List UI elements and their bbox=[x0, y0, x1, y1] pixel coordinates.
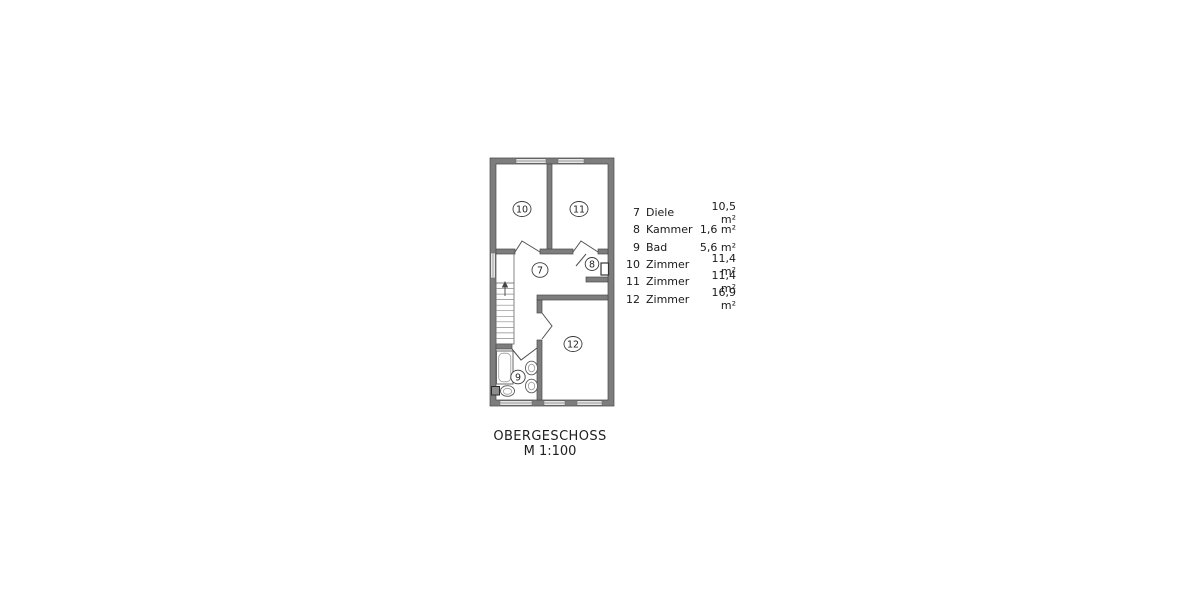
legend-room-name: Zimmer bbox=[646, 275, 694, 288]
wall-bad-north bbox=[496, 344, 512, 349]
room-label-10: 10 bbox=[513, 202, 531, 217]
window-room12-right bbox=[577, 401, 602, 406]
bathtub bbox=[497, 351, 514, 384]
legend-room-name: Zimmer bbox=[646, 258, 694, 271]
legend-room-number: 9 bbox=[624, 241, 640, 254]
wall-room10-room11 bbox=[547, 164, 552, 253]
legend-room-area: 16,9 m² bbox=[694, 286, 736, 312]
legend-room-number: 10 bbox=[624, 258, 640, 271]
window-bad bbox=[500, 401, 532, 406]
legend-room-number: 12 bbox=[624, 293, 640, 306]
wall-kammer-south bbox=[586, 277, 608, 282]
legend-room-name: Bad bbox=[646, 241, 694, 254]
window-room12-left bbox=[544, 401, 565, 406]
legend-room-number: 7 bbox=[624, 206, 640, 219]
room-number-9: 9 bbox=[515, 372, 521, 383]
kammer-shaft bbox=[601, 263, 609, 275]
legend-room-area: 10,5 m² bbox=[694, 200, 736, 226]
legend-room-name: Kammer bbox=[646, 223, 694, 236]
door-room12 bbox=[542, 313, 552, 339]
wall-room12-north bbox=[537, 295, 608, 300]
legend-row-kammer: 8 Kammer 1,6 m² bbox=[624, 221, 742, 238]
door-kammer bbox=[576, 254, 586, 266]
wall-diele-north-a bbox=[496, 249, 515, 254]
room-label-7: 7 bbox=[532, 263, 548, 278]
room-legend: 7 Diele 10,5 m² 8 Kammer 1,6 m² 9 Bad 5,… bbox=[624, 204, 742, 308]
legend-room-name: Zimmer bbox=[646, 293, 694, 306]
drawing-title-block: OBERGESCHOSS M 1:100 bbox=[450, 429, 650, 460]
room-number-8: 8 bbox=[589, 259, 595, 270]
room-label-8: 8 bbox=[585, 258, 599, 271]
wall-room12-west-stub bbox=[537, 300, 542, 313]
legend-room-number: 11 bbox=[624, 275, 640, 288]
washbasin-bottom bbox=[526, 379, 538, 393]
legend-room-number: 8 bbox=[624, 223, 640, 236]
floor-title: OBERGESCHOSS bbox=[450, 429, 650, 444]
wall-diele-north-b bbox=[540, 249, 573, 254]
door-room11 bbox=[573, 241, 598, 252]
window-stairwell bbox=[491, 253, 496, 278]
door-bad bbox=[512, 348, 537, 360]
doors bbox=[512, 241, 598, 360]
room-labels: 7 8 9 10 11 12 bbox=[511, 202, 599, 384]
room-number-10: 10 bbox=[516, 204, 528, 215]
room-label-12: 12 bbox=[564, 337, 582, 352]
door-room10 bbox=[515, 241, 540, 252]
floor-plan: 7 8 9 10 11 12 bbox=[484, 152, 620, 412]
room-label-11: 11 bbox=[570, 202, 588, 217]
wall-diele-north-c bbox=[598, 249, 608, 254]
room-label-9: 9 bbox=[511, 370, 525, 384]
legend-row-diele: 7 Diele 10,5 m² bbox=[624, 204, 742, 221]
wall-bad-room12 bbox=[537, 340, 542, 400]
toilet bbox=[501, 386, 515, 397]
legend-room-name: Diele bbox=[646, 206, 694, 219]
room-number-12: 12 bbox=[567, 339, 579, 350]
legend-room-area: 1,6 m² bbox=[694, 223, 736, 236]
page-background: 7 8 9 10 11 12 bbox=[0, 0, 1200, 600]
staircase bbox=[496, 252, 514, 344]
scale-label: M 1:100 bbox=[450, 444, 650, 460]
washbasin-top bbox=[526, 361, 538, 375]
legend-row-zimmer-12: 12 Zimmer 16,9 m² bbox=[624, 290, 742, 307]
window-room10 bbox=[516, 159, 546, 164]
window-room11 bbox=[558, 159, 584, 164]
room-number-11: 11 bbox=[573, 204, 585, 215]
room-number-7: 7 bbox=[537, 265, 543, 276]
corner-duct bbox=[492, 387, 500, 396]
